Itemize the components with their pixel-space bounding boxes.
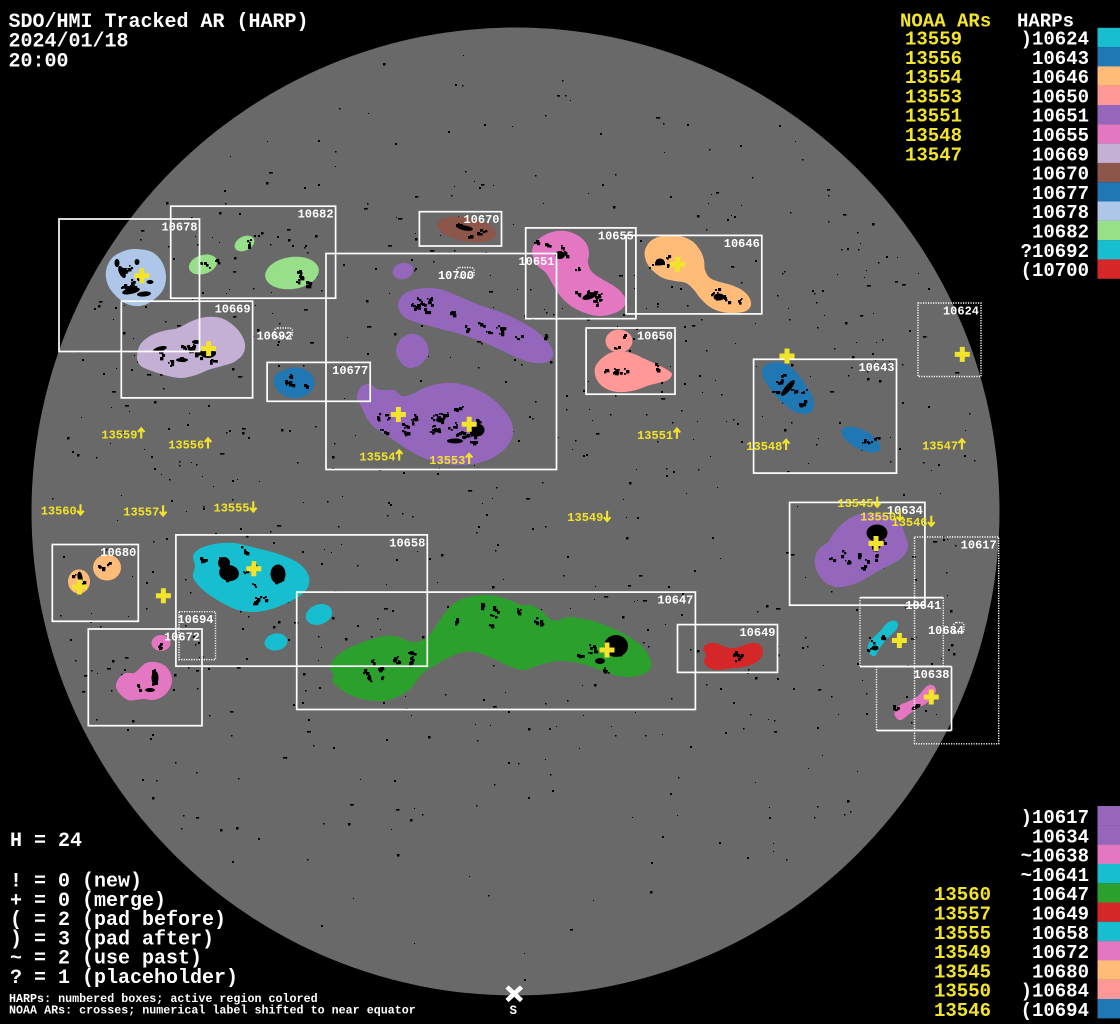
svg-text:NOAA ARs: crosses; numerical l: NOAA ARs: crosses; numerical label shift… bbox=[9, 1004, 416, 1018]
svg-text:10670: 10670 bbox=[463, 213, 499, 227]
svg-text:10672: 10672 bbox=[164, 631, 200, 645]
svg-text:10617: 10617 bbox=[961, 539, 997, 553]
svg-text:? = 1 (placeholder): ? = 1 (placeholder) bbox=[10, 967, 238, 990]
svg-text:10646: 10646 bbox=[724, 237, 760, 251]
svg-text:(10700: (10700 bbox=[1021, 260, 1089, 282]
svg-text:H = 24: H = 24 bbox=[10, 830, 82, 853]
svg-text:10658: 10658 bbox=[389, 536, 425, 550]
svg-text:(10694: (10694 bbox=[1021, 1000, 1089, 1022]
svg-text:10649: 10649 bbox=[739, 626, 775, 640]
svg-text:13545: 13545 bbox=[837, 497, 873, 511]
svg-text:13553: 13553 bbox=[429, 454, 465, 468]
svg-text:13560: 13560 bbox=[41, 505, 77, 519]
svg-text:S: S bbox=[510, 1004, 518, 1018]
svg-text:13555: 13555 bbox=[214, 502, 250, 516]
svg-text:10641: 10641 bbox=[905, 599, 941, 613]
svg-text:10678: 10678 bbox=[161, 221, 197, 235]
svg-text:10684: 10684 bbox=[928, 624, 964, 638]
svg-text:13554: 13554 bbox=[359, 451, 395, 465]
svg-text:13547: 13547 bbox=[905, 144, 962, 166]
svg-text:10655: 10655 bbox=[598, 229, 634, 243]
svg-text:20:00: 20:00 bbox=[9, 50, 69, 73]
svg-text:10669: 10669 bbox=[215, 303, 251, 317]
svg-text:13546: 13546 bbox=[892, 516, 928, 530]
svg-text:10682: 10682 bbox=[298, 208, 334, 222]
svg-text:13559: 13559 bbox=[101, 429, 137, 443]
svg-text:10700: 10700 bbox=[438, 269, 474, 283]
svg-text:10624: 10624 bbox=[943, 305, 979, 319]
svg-text:13546: 13546 bbox=[934, 1000, 991, 1022]
svg-text:10677: 10677 bbox=[332, 364, 368, 378]
svg-text:13548: 13548 bbox=[746, 440, 782, 454]
svg-text:10650: 10650 bbox=[637, 330, 673, 344]
svg-text:10680: 10680 bbox=[100, 546, 136, 560]
svg-text:13547: 13547 bbox=[922, 440, 958, 454]
svg-text:10638: 10638 bbox=[913, 668, 949, 682]
svg-text:10694: 10694 bbox=[177, 613, 213, 627]
svg-text:13556: 13556 bbox=[168, 439, 204, 453]
svg-text:10651: 10651 bbox=[518, 255, 554, 269]
svg-text:13551: 13551 bbox=[637, 429, 673, 443]
svg-text:10692: 10692 bbox=[256, 330, 292, 344]
svg-text:10643: 10643 bbox=[858, 361, 894, 375]
svg-text:13557: 13557 bbox=[123, 506, 159, 520]
svg-text:10647: 10647 bbox=[657, 594, 693, 608]
svg-text:13549: 13549 bbox=[567, 511, 603, 525]
